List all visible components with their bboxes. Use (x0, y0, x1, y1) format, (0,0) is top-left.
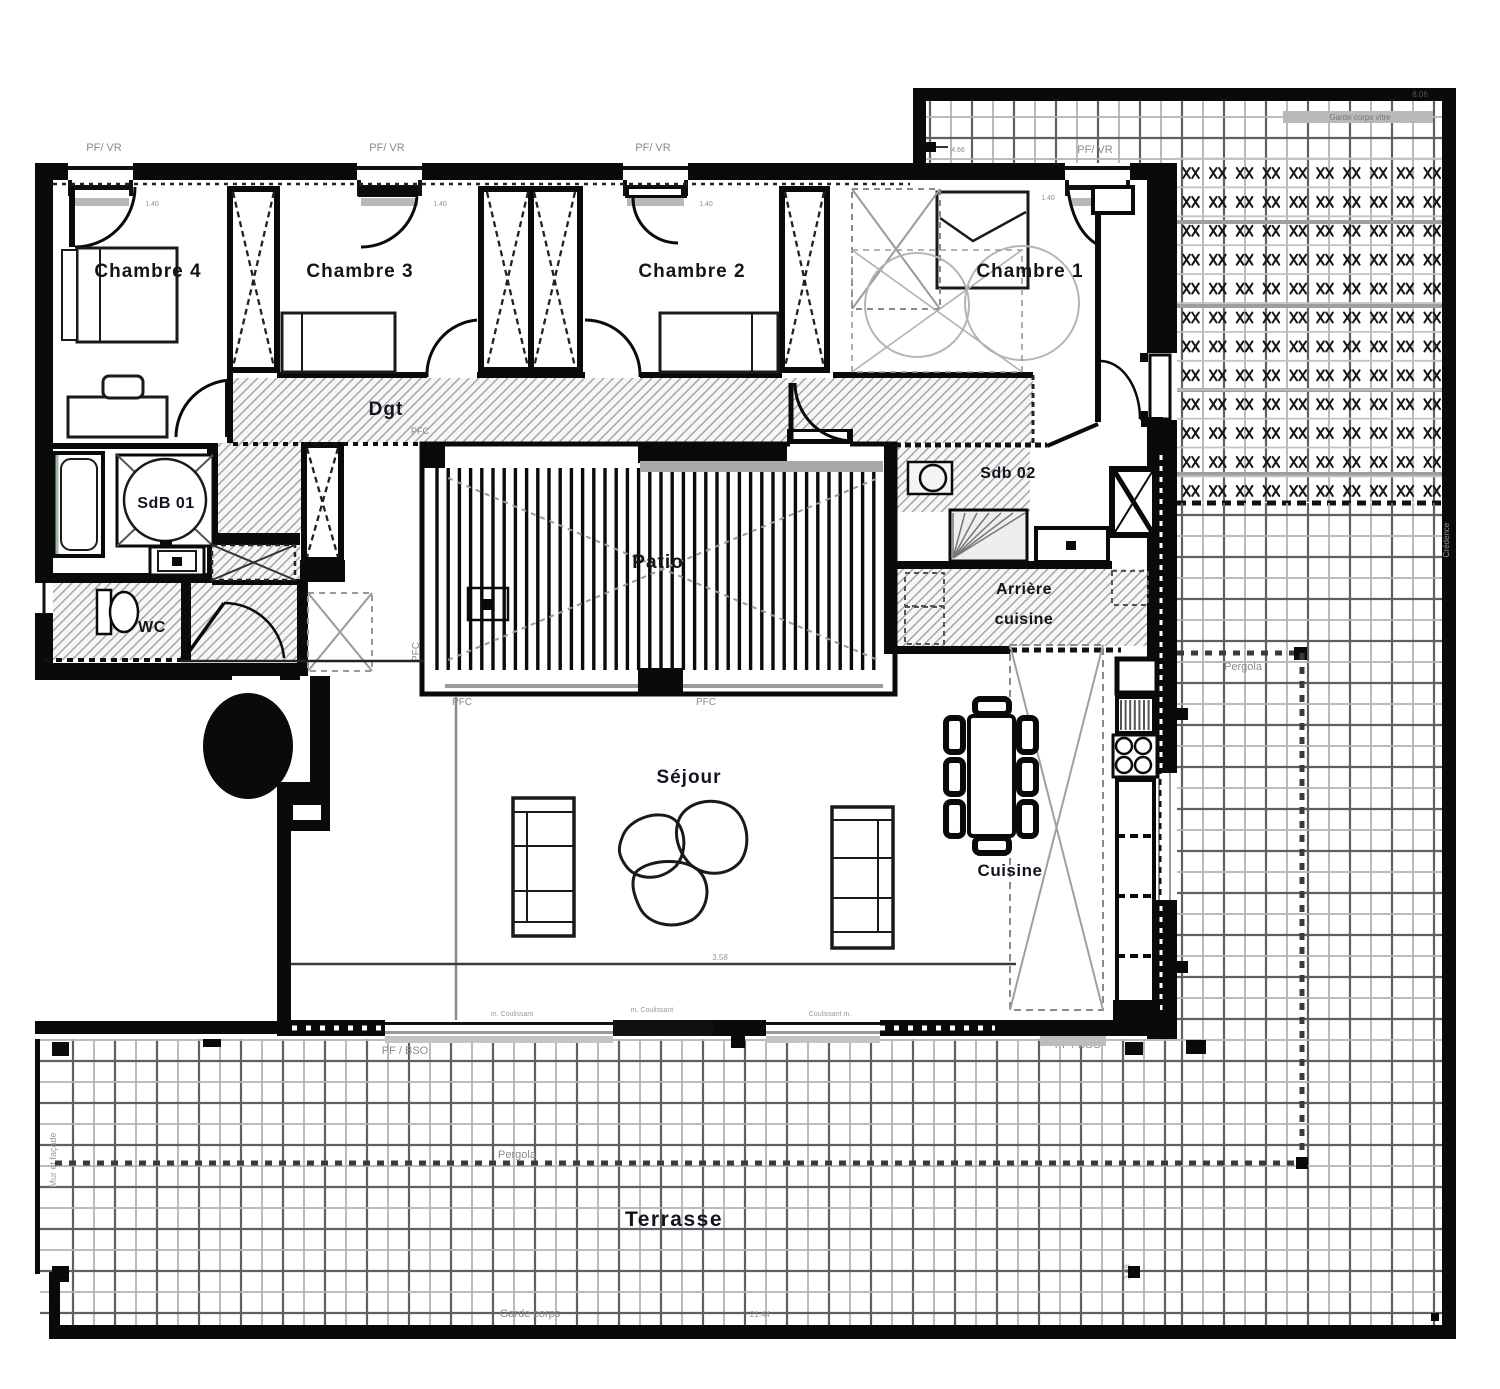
svg-text:Patio: Patio (632, 552, 683, 573)
svg-text:PF/ VR: PF/ VR (1077, 144, 1113, 156)
svg-text:1.40: 1.40 (145, 201, 159, 208)
svg-text:Chambre 4: Chambre 4 (94, 261, 201, 282)
svg-text:1.40: 1.40 (699, 201, 713, 208)
svg-text:1.40: 1.40 (433, 201, 447, 208)
svg-text:PF/ VR: PF/ VR (86, 142, 122, 154)
svg-text:m. Coulissant: m. Coulissant (631, 1007, 673, 1014)
svg-text:3.58: 3.58 (712, 953, 728, 962)
svg-text:Cuisine: Cuisine (978, 861, 1043, 880)
svg-text:PF / BSO: PF / BSO (382, 1045, 429, 1057)
svg-text:8.06: 8.06 (1412, 90, 1428, 99)
svg-text:PFC: PFC (411, 426, 430, 436)
svg-text:1.40: 1.40 (1041, 195, 1055, 202)
svg-text:Chambre 1: Chambre 1 (976, 261, 1083, 282)
svg-text:Sdb 02: Sdb 02 (980, 465, 1035, 482)
svg-text:Pergola: Pergola (498, 1149, 537, 1161)
svg-text:Coulissant m.: Coulissant m. (809, 1011, 851, 1018)
svg-text:Arrière: Arrière (996, 581, 1052, 598)
svg-text:Dgt: Dgt (369, 399, 404, 420)
svg-text:PFC: PFC (696, 697, 716, 708)
svg-text:Garde corps: Garde corps (500, 1308, 561, 1320)
svg-text:PFC: PFC (411, 642, 422, 662)
svg-text:Séjour: Séjour (656, 767, 721, 788)
svg-text:21.44: 21.44 (750, 1310, 771, 1319)
svg-text:Mur et façade: Mur et façade (48, 1132, 58, 1187)
svg-text:Garde corps vitre: Garde corps vitre (1329, 113, 1391, 122)
svg-text:4.66: 4.66 (951, 147, 965, 154)
svg-text:cuisine: cuisine (995, 611, 1054, 628)
svg-text:Pergola: Pergola (1224, 661, 1263, 673)
svg-text:Chambre 2: Chambre 2 (638, 261, 745, 282)
svg-text:SdB 01: SdB 01 (137, 495, 194, 512)
svg-text:Crédence: Crédence (1442, 522, 1451, 557)
svg-text:WC: WC (138, 619, 166, 636)
svg-text:PF/ VR: PF/ VR (635, 142, 671, 154)
svg-text:PF/ VR: PF/ VR (369, 142, 405, 154)
svg-text:Chambre 3: Chambre 3 (306, 261, 413, 282)
svg-text:m. Coulissant: m. Coulissant (491, 1011, 533, 1018)
svg-text:Terrasse: Terrasse (625, 1208, 723, 1231)
